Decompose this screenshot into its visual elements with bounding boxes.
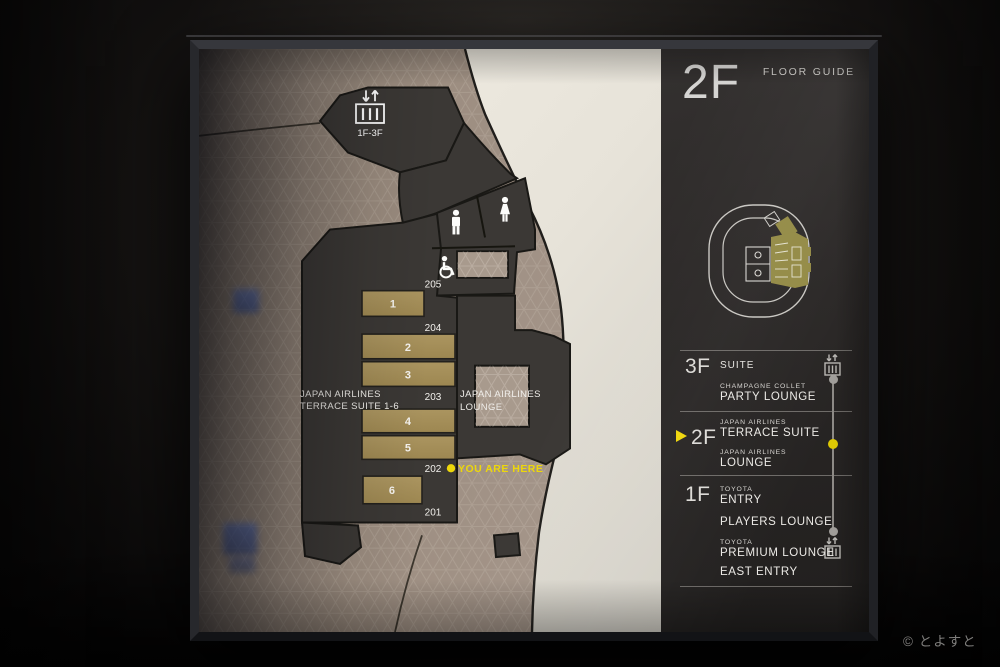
door-number: 201: [425, 508, 442, 519]
floor-id-3f: 3F: [685, 355, 711, 379]
entry-terrace-suite: TERRACE SUITE: [720, 427, 820, 439]
floor-connector-line: [832, 381, 834, 533]
entry-lounge: LOUNGE: [720, 457, 772, 469]
sign-face: 1 2 3 4 5 6 205 204 203 202 201 JAPAN AI…: [199, 49, 869, 632]
sign-frame-highlight: [186, 35, 882, 37]
floor-guide-sign: 1 2 3 4 5 6 205 204 203 202 201 JAPAN AI…: [190, 40, 878, 641]
entry-terrace-suite-sub: JAPAN AIRLINES: [720, 419, 787, 426]
connector-dot-3f: [829, 375, 838, 384]
panel-floor-title: 2F: [682, 55, 740, 110]
connector-dot-2f-current: [828, 439, 838, 449]
entry-party-lounge: PARTY LOUNGE: [720, 391, 816, 403]
divider: [680, 586, 852, 587]
directory-panel: 2F FLOOR GUIDE: [661, 49, 869, 632]
door-number: 202: [425, 464, 442, 475]
room-number: 3: [405, 370, 411, 382]
entry-entry: ENTRY: [720, 494, 762, 506]
divider: [680, 475, 852, 476]
door-number: 204: [425, 323, 442, 334]
small-block: [494, 533, 520, 557]
floor-id-1f: 1F: [685, 483, 711, 507]
you-are-here-label: YOU ARE HERE: [458, 464, 543, 475]
stadium-overview-minimap: [687, 197, 843, 329]
terrace-suite-label-line1: JAPAN AIRLINES: [300, 388, 381, 399]
panel-guide-title: FLOOR GUIDE: [763, 66, 855, 78]
entry-suite: SUITE: [720, 360, 754, 371]
elevator-range-label: 1F-3F: [357, 127, 383, 138]
divider: [680, 350, 852, 351]
room-number: 5: [405, 443, 411, 455]
connector-dot-1f: [829, 527, 838, 536]
entry-premium-lounge-sub: TOYOTA: [720, 539, 753, 546]
room-number: 1: [390, 299, 396, 311]
entry-lounge-sub: JAPAN AIRLINES: [720, 449, 787, 456]
photo-stage: 1 2 3 4 5 6 205 204 203 202 201 JAPAN AI…: [0, 0, 1000, 667]
minimap-highlight-area: [764, 212, 811, 288]
terrace-suite-label-line2: TERRACE SUITE 1-6: [300, 400, 399, 411]
room-number: 6: [389, 485, 395, 497]
door-number: 205: [425, 280, 442, 291]
entry-entry-sub: TOYOTA: [720, 486, 753, 493]
you-are-here-dot: [447, 464, 455, 472]
door-number: 203: [425, 392, 442, 403]
glass-reflection: [229, 557, 255, 573]
room-number: 4: [405, 416, 411, 428]
entry-east-entry: EAST ENTRY: [720, 566, 798, 578]
glass-reflection: [233, 289, 259, 313]
divider: [680, 411, 852, 412]
floor-map: 1 2 3 4 5 6 205 204 203 202 201 JAPAN AI…: [199, 49, 661, 632]
photo-watermark: © とよすと: [903, 630, 977, 650]
floor-id-2f: 2F: [691, 426, 717, 450]
minimap-court: [746, 247, 770, 281]
current-floor-arrow: [676, 430, 687, 442]
glass-reflection: [223, 523, 257, 555]
you-are-here-marker: YOU ARE HERE: [447, 464, 544, 475]
lounge-label-line2: LOUNGE: [460, 401, 502, 412]
room-number: 2: [405, 342, 411, 354]
entry-party-lounge-sub: CHAMPAGNE COLLET: [720, 383, 806, 390]
entry-players-lounge: PLAYERS LOUNGE: [720, 516, 832, 528]
lounge-label-line1: JAPAN AIRLINES: [460, 388, 541, 399]
elevator-icon-3f: [822, 353, 844, 377]
entry-premium-lounge: PREMIUM LOUNGE: [720, 547, 834, 559]
